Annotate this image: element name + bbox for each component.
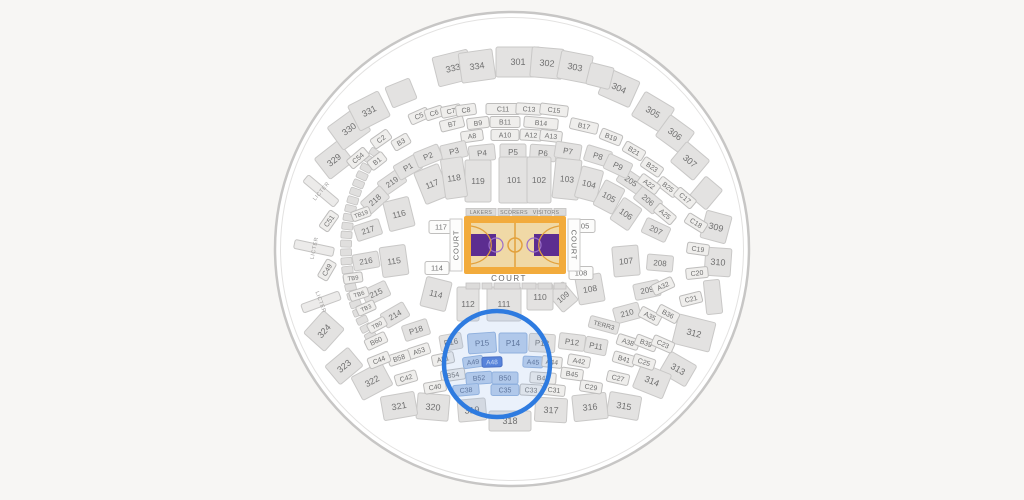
section-B14[interactable]: B14 [524,116,559,130]
section-label: C8 [461,107,471,115]
section-label: P4 [477,148,488,158]
section-label: 114 [431,264,443,273]
section-label: 317 [543,405,559,416]
court-label-vertical: COURT [569,230,578,261]
benches-label-lakers: LAKERS [470,210,493,216]
floor-box [538,283,552,289]
section-unlabeled [703,279,722,314]
section-label: C31 [547,387,561,395]
section-shape [703,279,722,314]
section-A12[interactable]: A12 [520,129,543,141]
section-102[interactable]: 102 [527,157,551,203]
section-label: 117 [435,223,447,232]
section-label: 112 [461,299,475,309]
section-label: 320 [425,402,441,413]
section-label: 101 [507,175,521,185]
section-label: B9 [473,120,482,128]
suite-box-shape [341,257,353,265]
section-label: P5 [508,148,518,157]
section-label: B14 [534,120,547,128]
section-label: 102 [532,175,546,185]
section-label: C13 [522,106,535,114]
section-label: 107 [618,255,633,266]
suite-box [342,222,354,230]
section-316[interactable]: 316 [572,392,609,421]
section-label: 334 [469,60,485,72]
suite-box [340,249,351,256]
section-C11[interactable]: C11 [486,104,520,115]
section-label: B11 [499,119,511,126]
section-label: A12 [525,132,538,140]
section-C8[interactable]: C8 [455,103,476,117]
floor-box [482,283,492,289]
court-label-vertical: COURT [452,230,461,261]
section-B45[interactable]: B45 [560,367,583,381]
section-label: 301 [510,57,525,67]
section-label: 111 [498,299,511,309]
section-208[interactable]: 208 [646,254,673,272]
seat-map-container: 3333343013023033043053063073093103123133… [0,0,1024,500]
benches-label-visitors: VISITORS [533,210,560,216]
section-B9[interactable]: B9 [466,116,489,130]
paint-left [471,234,496,256]
section-115[interactable]: 115 [379,244,409,277]
section-label: 115 [387,255,402,267]
section-label: P12 [564,337,580,348]
section-label: A8 [467,133,477,141]
section-label: P7 [562,146,574,157]
suite-box-shape [340,240,351,247]
section-label: C11 [497,106,509,113]
section-label: 302 [539,58,555,69]
benches-label-scorers: SCORERS [500,210,528,216]
section-321[interactable]: 321 [380,391,418,421]
section-P12[interactable]: P12 [558,332,586,351]
section-101[interactable]: 101 [499,157,529,203]
suite-box [340,240,351,247]
floor-box [554,283,566,289]
courtside-box-114[interactable]: 114 [425,262,449,275]
suite-box-shape [341,231,353,239]
section-C20[interactable]: C20 [685,266,708,279]
section-label: 110 [533,292,547,302]
section-317[interactable]: 317 [534,397,567,423]
suite-box [341,257,353,265]
section-119[interactable]: 119 [465,160,491,202]
section-label: 310 [710,257,726,268]
court-label-bottom: COURT [491,274,527,283]
section-A13[interactable]: A13 [539,129,562,143]
section-C19[interactable]: C19 [686,242,709,256]
section-label: 208 [653,258,668,268]
suite-box-shape [340,249,351,256]
section-TB9[interactable]: TB9 [343,272,363,285]
arena-map-svg: 3333343013023033043053063073093103123133… [0,0,1024,500]
section-107[interactable]: 107 [612,245,641,277]
section-334[interactable]: 334 [458,49,496,83]
section-label: A10 [499,132,512,139]
floor-box [494,283,520,289]
section-P11[interactable]: P11 [584,336,609,356]
floor-box [522,283,536,289]
section-C13[interactable]: C13 [516,103,543,115]
paint-right [534,234,559,256]
section-B11[interactable]: B11 [490,117,520,128]
suite-box [341,231,353,239]
section-label: C20 [690,270,704,278]
section-label: 118 [447,172,462,184]
section-320[interactable]: 320 [416,393,450,422]
floor-box [466,283,480,289]
suite-box-shape [342,222,354,230]
section-label: 316 [582,401,598,413]
section-A10[interactable]: A10 [491,130,519,141]
section-315[interactable]: 315 [606,391,642,420]
courtside-box-117[interactable]: 117 [429,221,453,234]
section-label: 119 [471,176,485,186]
section-label: 103 [559,173,574,184]
